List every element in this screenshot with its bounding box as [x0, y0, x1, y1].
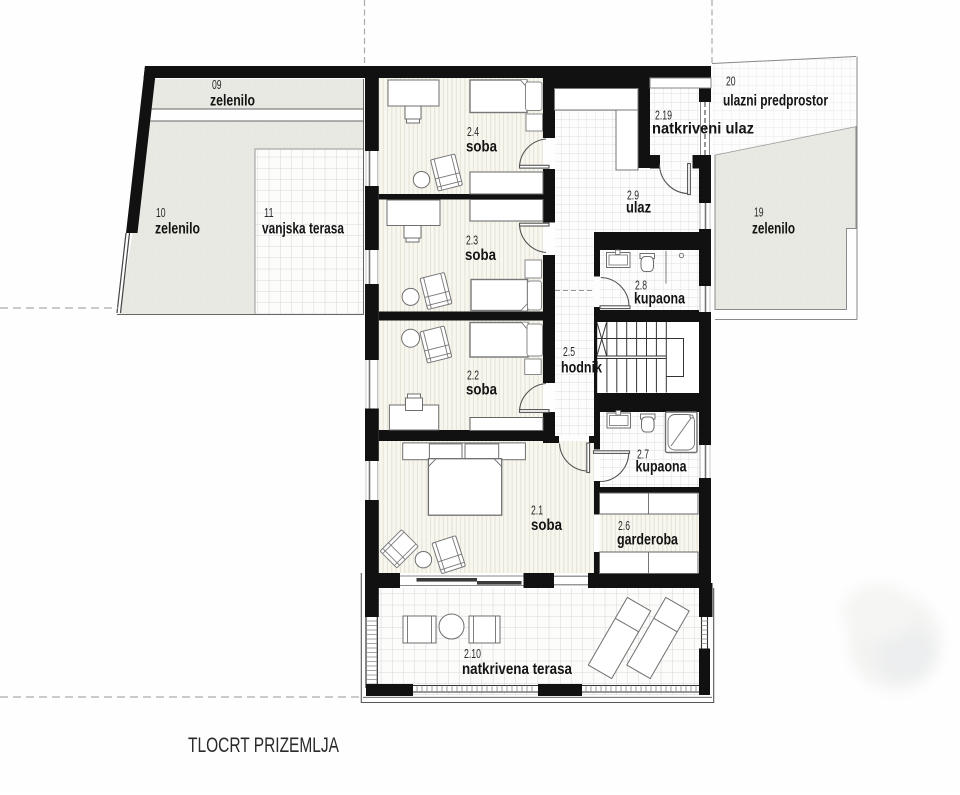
svg-text:ulaz: ulaz — [626, 200, 651, 217]
svg-text:soba: soba — [531, 517, 562, 534]
svg-text:soba: soba — [465, 247, 496, 264]
svg-text:2.2: 2.2 — [467, 369, 479, 383]
svg-text:2.1: 2.1 — [531, 504, 543, 518]
svg-text:vanjska terasa: vanjska terasa — [262, 221, 344, 238]
svg-text:TLOCRT PRIZEMLJA: TLOCRT PRIZEMLJA — [188, 734, 339, 757]
svg-text:soba: soba — [466, 382, 497, 399]
svg-text:natkriveni ulaz: natkriveni ulaz — [652, 121, 754, 138]
svg-text:10: 10 — [156, 206, 166, 220]
svg-text:09: 09 — [212, 78, 222, 92]
svg-text:zelenilo: zelenilo — [210, 93, 255, 110]
svg-text:kupaona: kupaona — [634, 291, 685, 308]
svg-text:kupaona: kupaona — [636, 459, 687, 476]
svg-text:2.5: 2.5 — [563, 345, 575, 359]
svg-text:hodnik: hodnik — [561, 360, 602, 377]
svg-text:zelenilo: zelenilo — [752, 221, 795, 238]
svg-text:garderoba: garderoba — [617, 532, 678, 549]
svg-text:soba: soba — [466, 139, 497, 156]
svg-text:19: 19 — [754, 206, 764, 220]
svg-text:2.4: 2.4 — [467, 125, 479, 139]
svg-text:ulazni predprostor: ulazni predprostor — [723, 93, 828, 110]
svg-text:11: 11 — [264, 206, 274, 220]
svg-text:2.3: 2.3 — [466, 234, 478, 248]
svg-text:2.10: 2.10 — [464, 647, 481, 661]
svg-text:zelenilo: zelenilo — [155, 221, 200, 238]
svg-text:20: 20 — [726, 75, 736, 89]
svg-text:natkrivena terasa: natkrivena terasa — [462, 661, 572, 678]
